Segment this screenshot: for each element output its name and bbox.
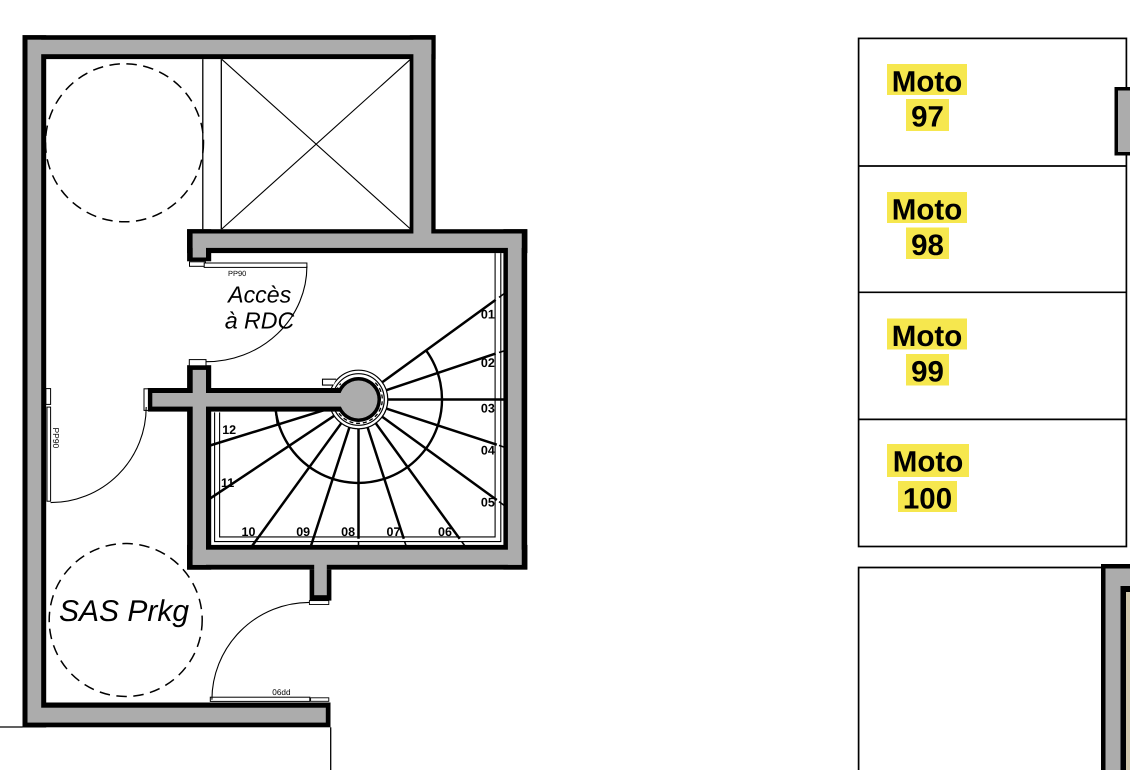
svg-text:01: 01 xyxy=(481,307,495,321)
svg-text:97: 97 xyxy=(911,100,944,133)
svg-text:Accès: Accès xyxy=(226,281,292,307)
svg-text:98: 98 xyxy=(911,229,944,262)
svg-text:99: 99 xyxy=(911,355,944,388)
svg-text:02: 02 xyxy=(481,356,495,370)
svg-text:Moto: Moto xyxy=(892,320,962,353)
svg-text:07: 07 xyxy=(387,525,401,539)
svg-text:06dd: 06dd xyxy=(272,688,291,697)
svg-text:PP90: PP90 xyxy=(51,428,61,449)
svg-text:SAS Prkg: SAS Prkg xyxy=(59,595,189,628)
svg-text:Moto: Moto xyxy=(892,194,962,227)
svg-text:05: 05 xyxy=(481,496,495,510)
svg-text:04: 04 xyxy=(481,443,495,457)
svg-text:10: 10 xyxy=(242,525,256,539)
svg-text:03: 03 xyxy=(481,402,495,416)
svg-text:06: 06 xyxy=(438,525,452,539)
svg-text:Moto: Moto xyxy=(893,446,963,479)
svg-text:à RDC: à RDC xyxy=(225,307,295,333)
svg-text:11: 11 xyxy=(221,476,234,490)
svg-text:100: 100 xyxy=(903,482,952,515)
svg-text:Moto: Moto xyxy=(892,66,962,99)
svg-text:09: 09 xyxy=(296,525,310,539)
svg-text:08: 08 xyxy=(341,525,355,539)
svg-text:PP90: PP90 xyxy=(228,269,246,278)
svg-text:12: 12 xyxy=(222,423,236,437)
